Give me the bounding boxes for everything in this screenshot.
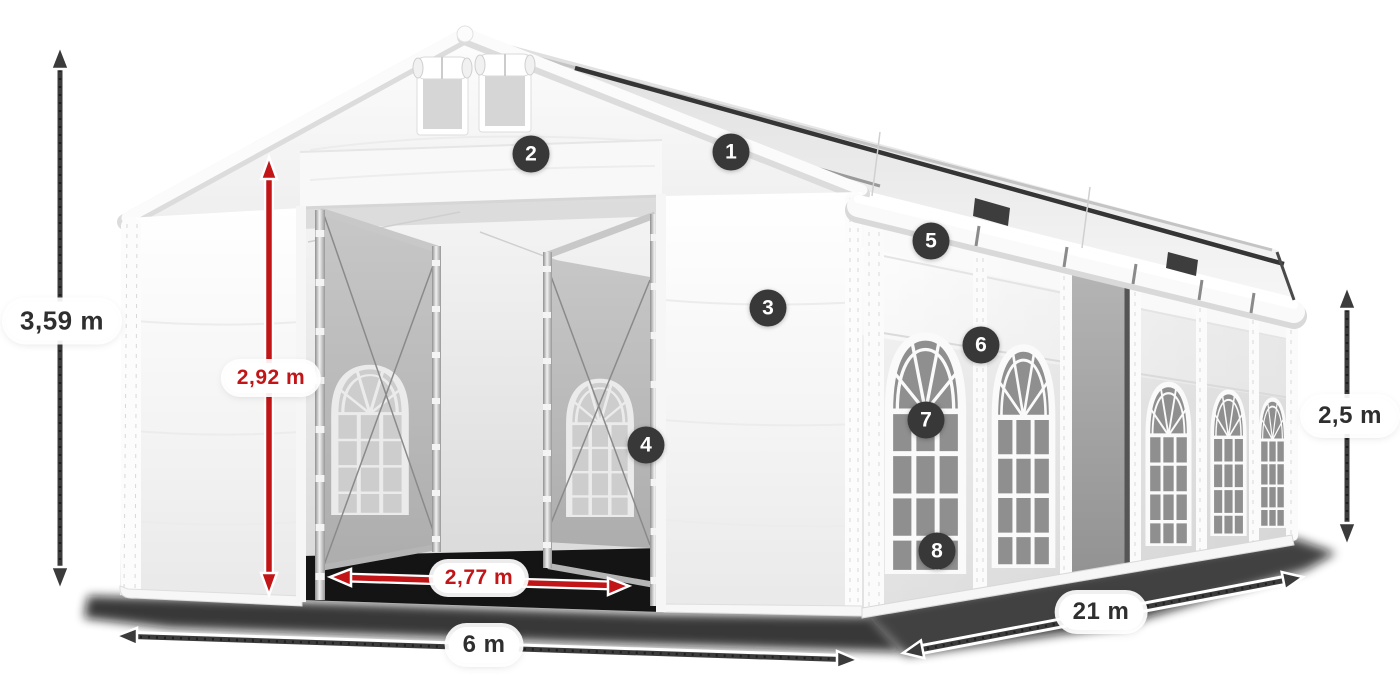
side-window-2 <box>995 348 1052 568</box>
callout-badge-3: 3 <box>750 290 787 327</box>
dimension-label-entrance-width: 2,77 m <box>433 563 525 593</box>
roof-vent-1 <box>413 57 472 135</box>
callout-badge-6: 6 <box>963 327 1000 364</box>
callout-badge-1: 1 <box>713 134 750 171</box>
callout-badge-5: 5 <box>913 223 950 260</box>
dimension-label-total-height: 3,59 m <box>6 302 118 341</box>
dimension-label-side-length: 21 m <box>1059 594 1144 630</box>
dimension-label-front-width: 6 m <box>449 627 520 663</box>
callout-badge-2: 2 <box>513 136 550 173</box>
dimension-label-entrance-height: 2,92 m <box>225 363 317 393</box>
front-door-opening <box>302 196 662 612</box>
front-left-panel <box>120 208 302 606</box>
side-window-4 <box>1212 392 1245 536</box>
callout-badge-8: 8 <box>919 533 956 570</box>
side-open-section <box>1072 255 1130 578</box>
left-door-leaf <box>324 213 438 568</box>
side-window-3 <box>1148 384 1189 546</box>
dimension-label-side-height: 2,5 m <box>1304 398 1396 434</box>
tent-illustration <box>0 0 1400 700</box>
roof-vent-2 <box>475 54 535 132</box>
side-window-5 <box>1260 400 1286 528</box>
front-right-panel <box>662 192 863 616</box>
callout-badge-7: 7 <box>908 402 945 439</box>
callout-badge-4: 4 <box>628 427 665 464</box>
tent-dimension-diagram: 3,59 m 2,92 m 2,77 m 6 m 21 m 2,5 m 1 2 … <box>0 0 1400 700</box>
right-door-leaf <box>545 258 650 548</box>
